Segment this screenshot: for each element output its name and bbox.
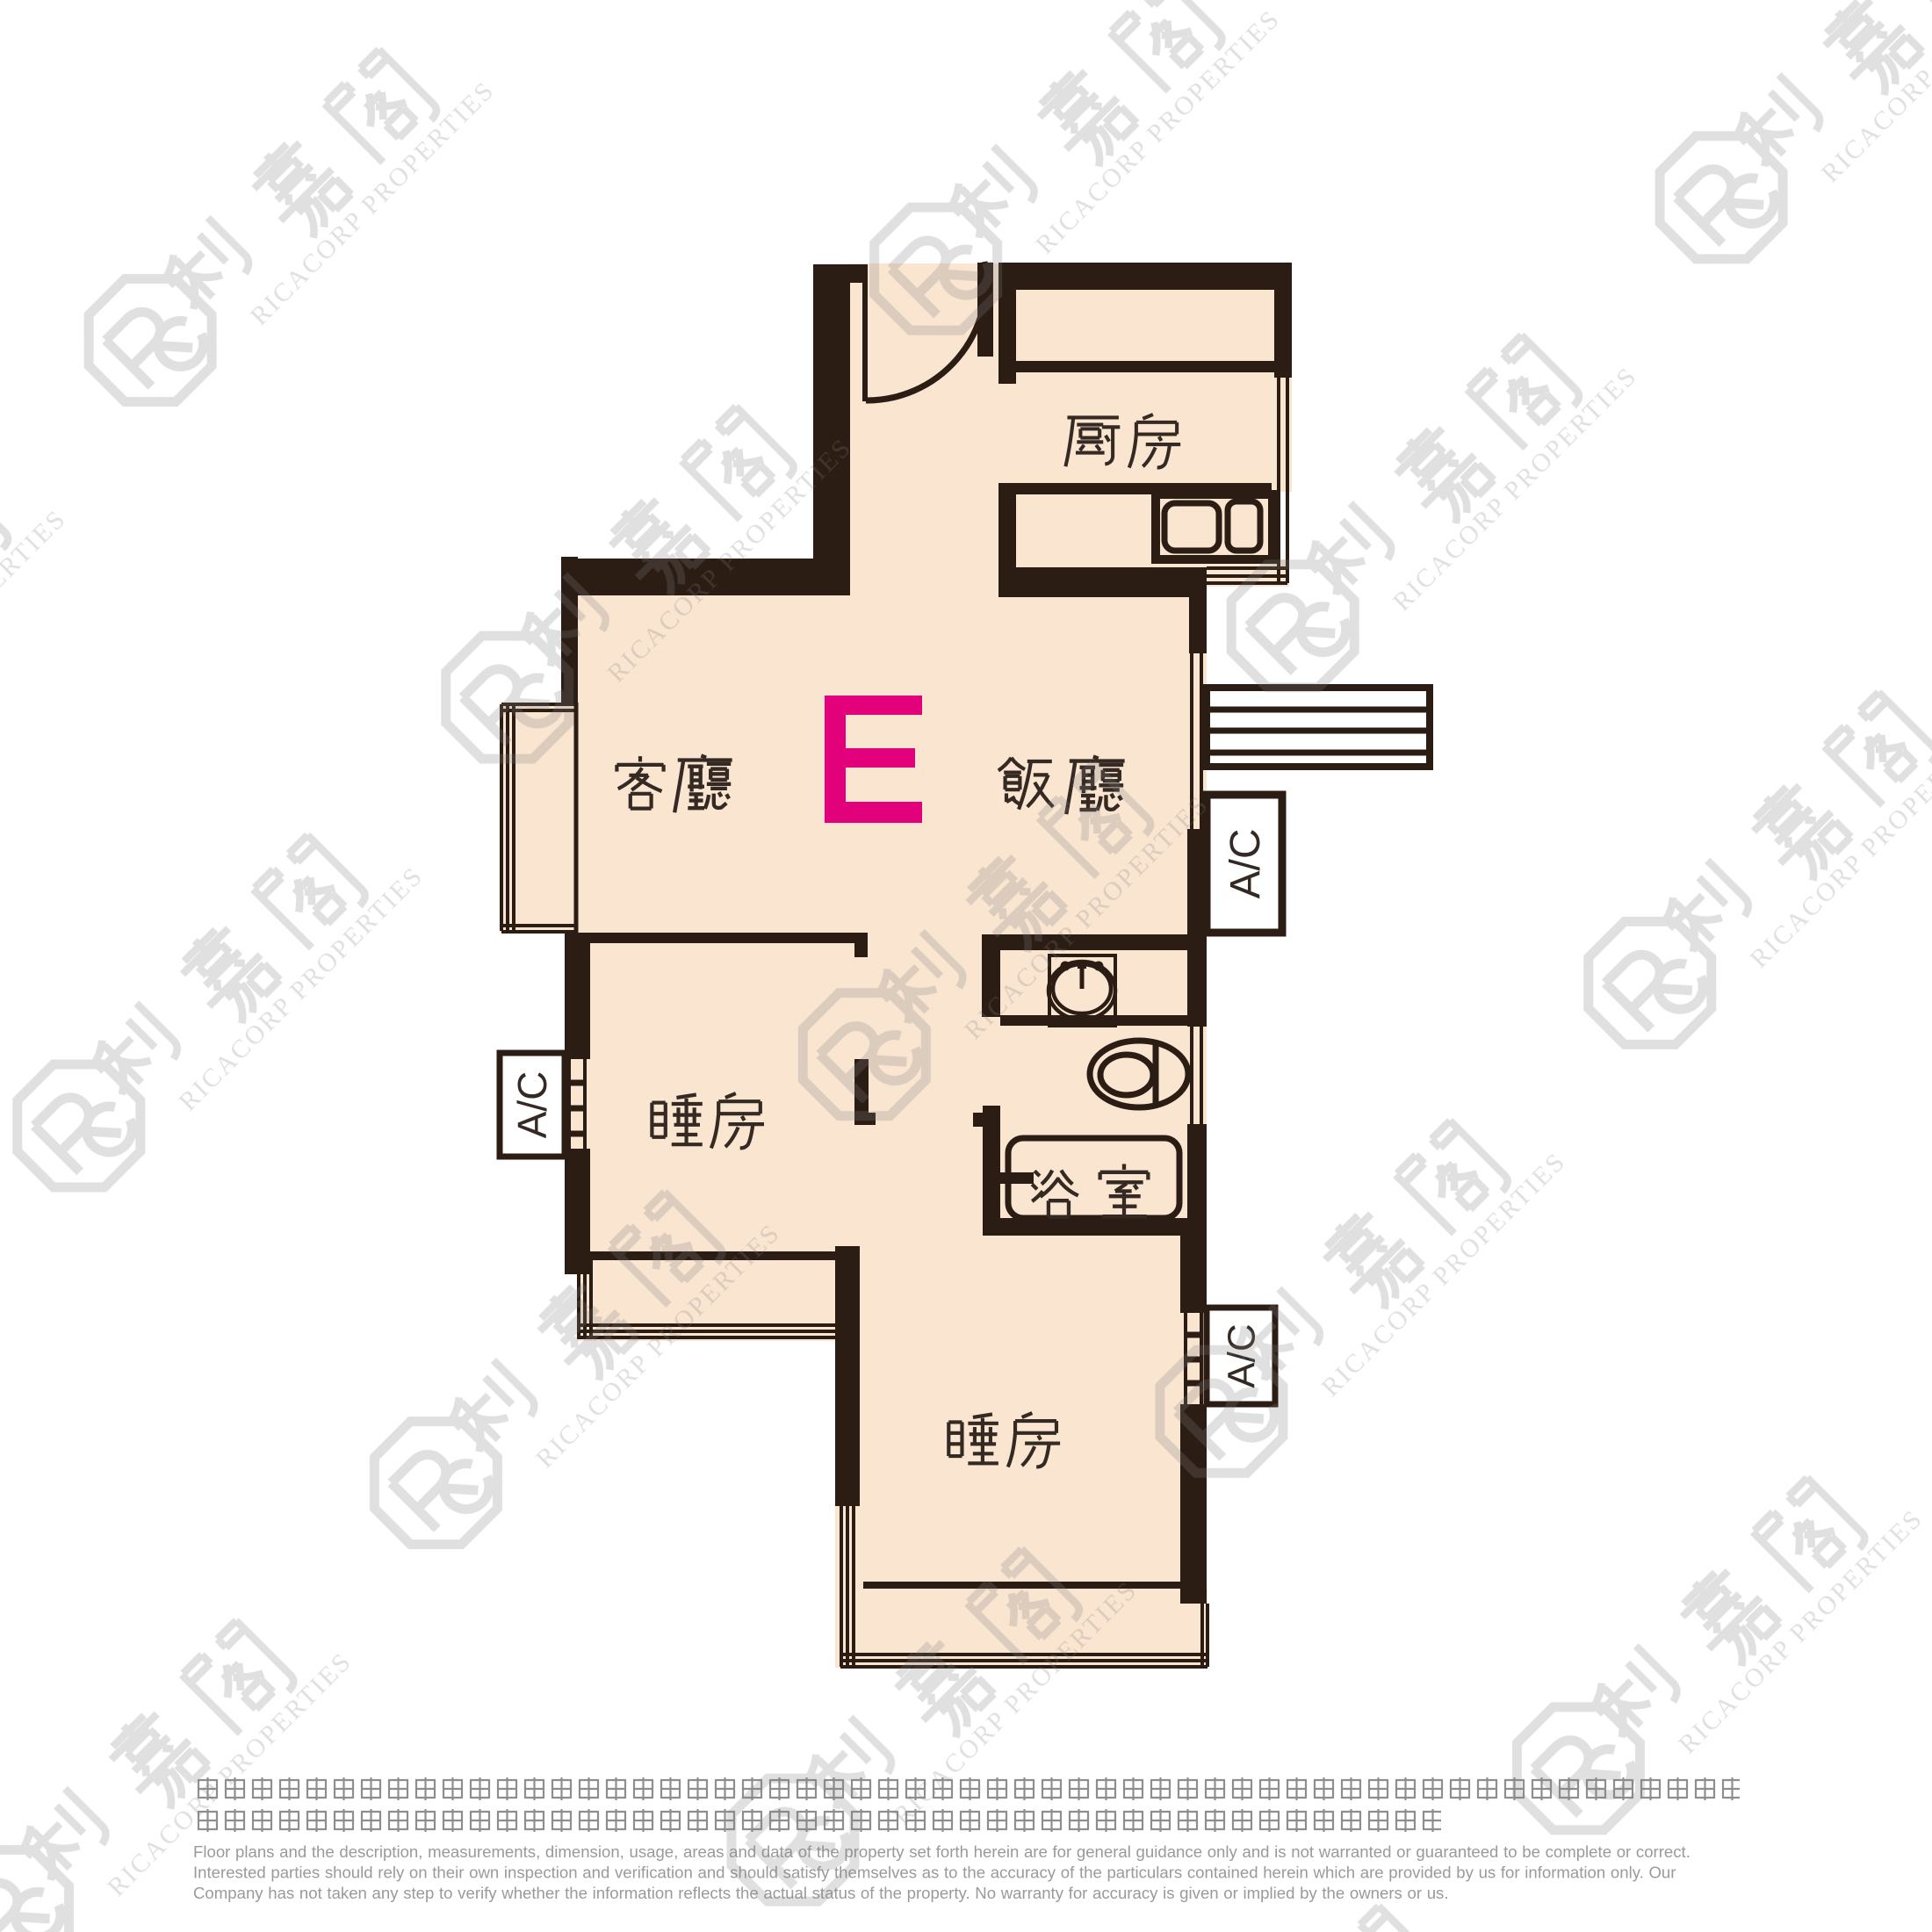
svg-text:Floor plans and the descriptio: Floor plans and the description, measure… [193, 1842, 1690, 1861]
svg-text:A/C: A/C [509, 1071, 555, 1139]
svg-text:Interested parties should rely: Interested parties should rely on their … [193, 1864, 1676, 1882]
svg-text:A/C: A/C [1222, 828, 1269, 898]
